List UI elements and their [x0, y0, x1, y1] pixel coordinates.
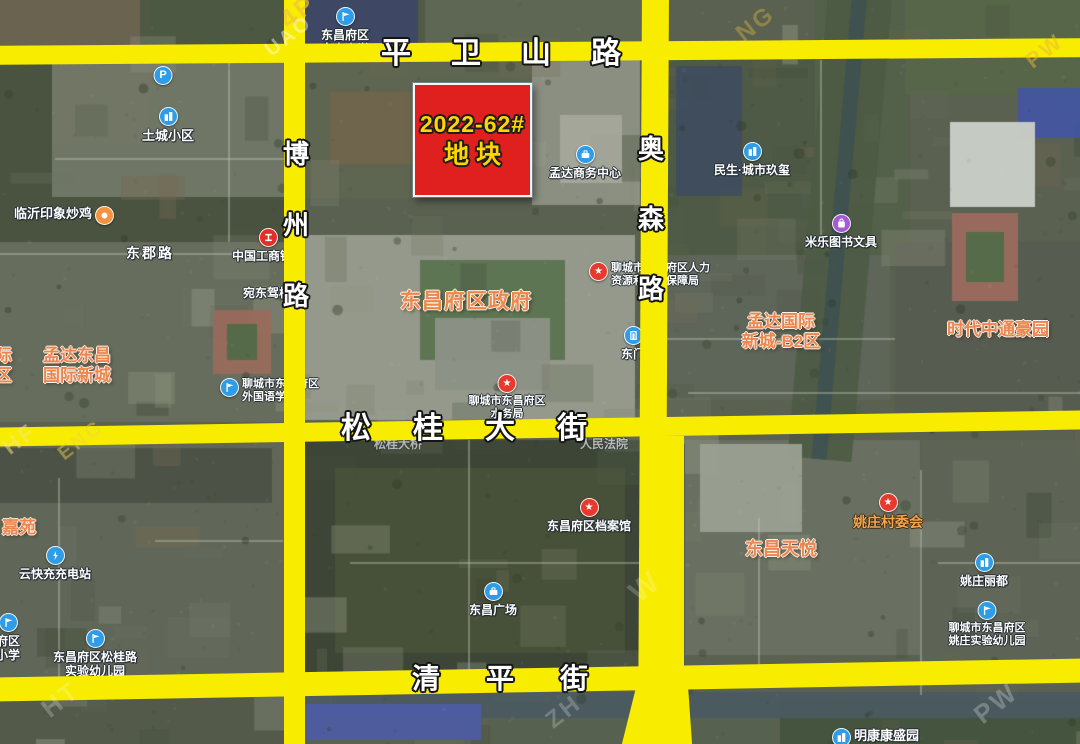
- parcel-word: 地块: [437, 143, 508, 168]
- satellite-imagery: [0, 0, 1080, 744]
- highlighted-parcel-2022-62[interactable]: 2022-62# 地块: [413, 83, 532, 197]
- parcel-code: 2022-62#: [420, 113, 525, 136]
- satellite-map: 东昌府区奥森小学P土城小区临沂印象炒鸡东郡路中国工商银行宛东驾校孟达东昌国际新城…: [0, 0, 1080, 744]
